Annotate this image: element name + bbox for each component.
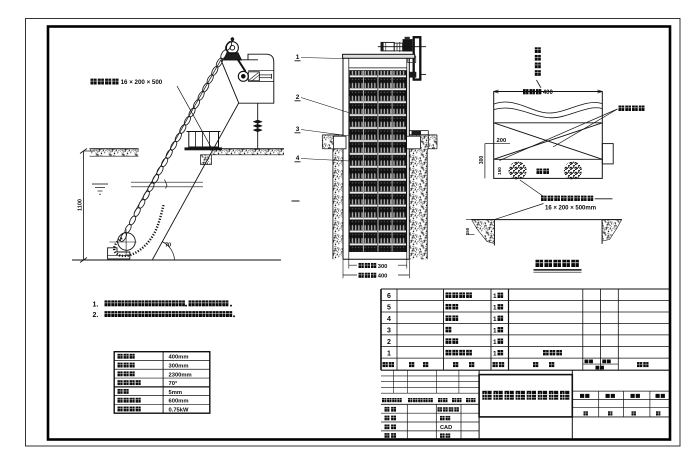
- svg-text:1: 1: [493, 327, 497, 334]
- svg-text:300mm: 300mm: [169, 363, 189, 369]
- svg-text:5: 5: [387, 305, 391, 312]
- svg-text:150: 150: [465, 227, 470, 235]
- svg-text:3: 3: [296, 126, 300, 133]
- svg-text:1100: 1100: [78, 199, 84, 211]
- svg-text:1: 1: [493, 316, 497, 323]
- svg-text:70: 70: [165, 243, 171, 249]
- svg-text:2300mm: 2300mm: [169, 372, 192, 378]
- svg-text:5mm: 5mm: [169, 390, 183, 396]
- svg-text:4: 4: [387, 316, 391, 323]
- svg-text:200: 200: [497, 138, 507, 144]
- svg-text:300: 300: [378, 264, 388, 270]
- svg-text:4: 4: [296, 155, 300, 162]
- svg-text:0.75kW: 0.75kW: [169, 407, 190, 413]
- svg-text:400mm: 400mm: [169, 355, 189, 361]
- svg-text:2: 2: [387, 339, 391, 346]
- svg-text:2.: 2.: [93, 312, 99, 319]
- svg-text:1: 1: [387, 350, 391, 357]
- svg-text:70°: 70°: [169, 381, 178, 387]
- svg-text:2: 2: [296, 94, 300, 101]
- svg-text:1.: 1.: [93, 301, 99, 308]
- svg-text:3: 3: [387, 327, 391, 334]
- svg-text:600mm: 600mm: [169, 399, 189, 405]
- svg-text:1: 1: [493, 339, 497, 346]
- svg-text:1: 1: [493, 305, 497, 312]
- svg-text:1: 1: [493, 350, 497, 357]
- svg-text:300: 300: [479, 156, 485, 165]
- svg-text:1: 1: [296, 54, 300, 61]
- svg-text:150: 150: [497, 167, 502, 175]
- svg-text:CAD: CAD: [440, 425, 452, 431]
- svg-text:16 × 200 × 500mm: 16 × 200 × 500mm: [545, 206, 596, 212]
- svg-text:400: 400: [378, 274, 388, 280]
- svg-text:6: 6: [387, 293, 391, 300]
- svg-text:1: 1: [493, 293, 497, 300]
- svg-text:16 × 200 × 500: 16 × 200 × 500: [121, 79, 163, 86]
